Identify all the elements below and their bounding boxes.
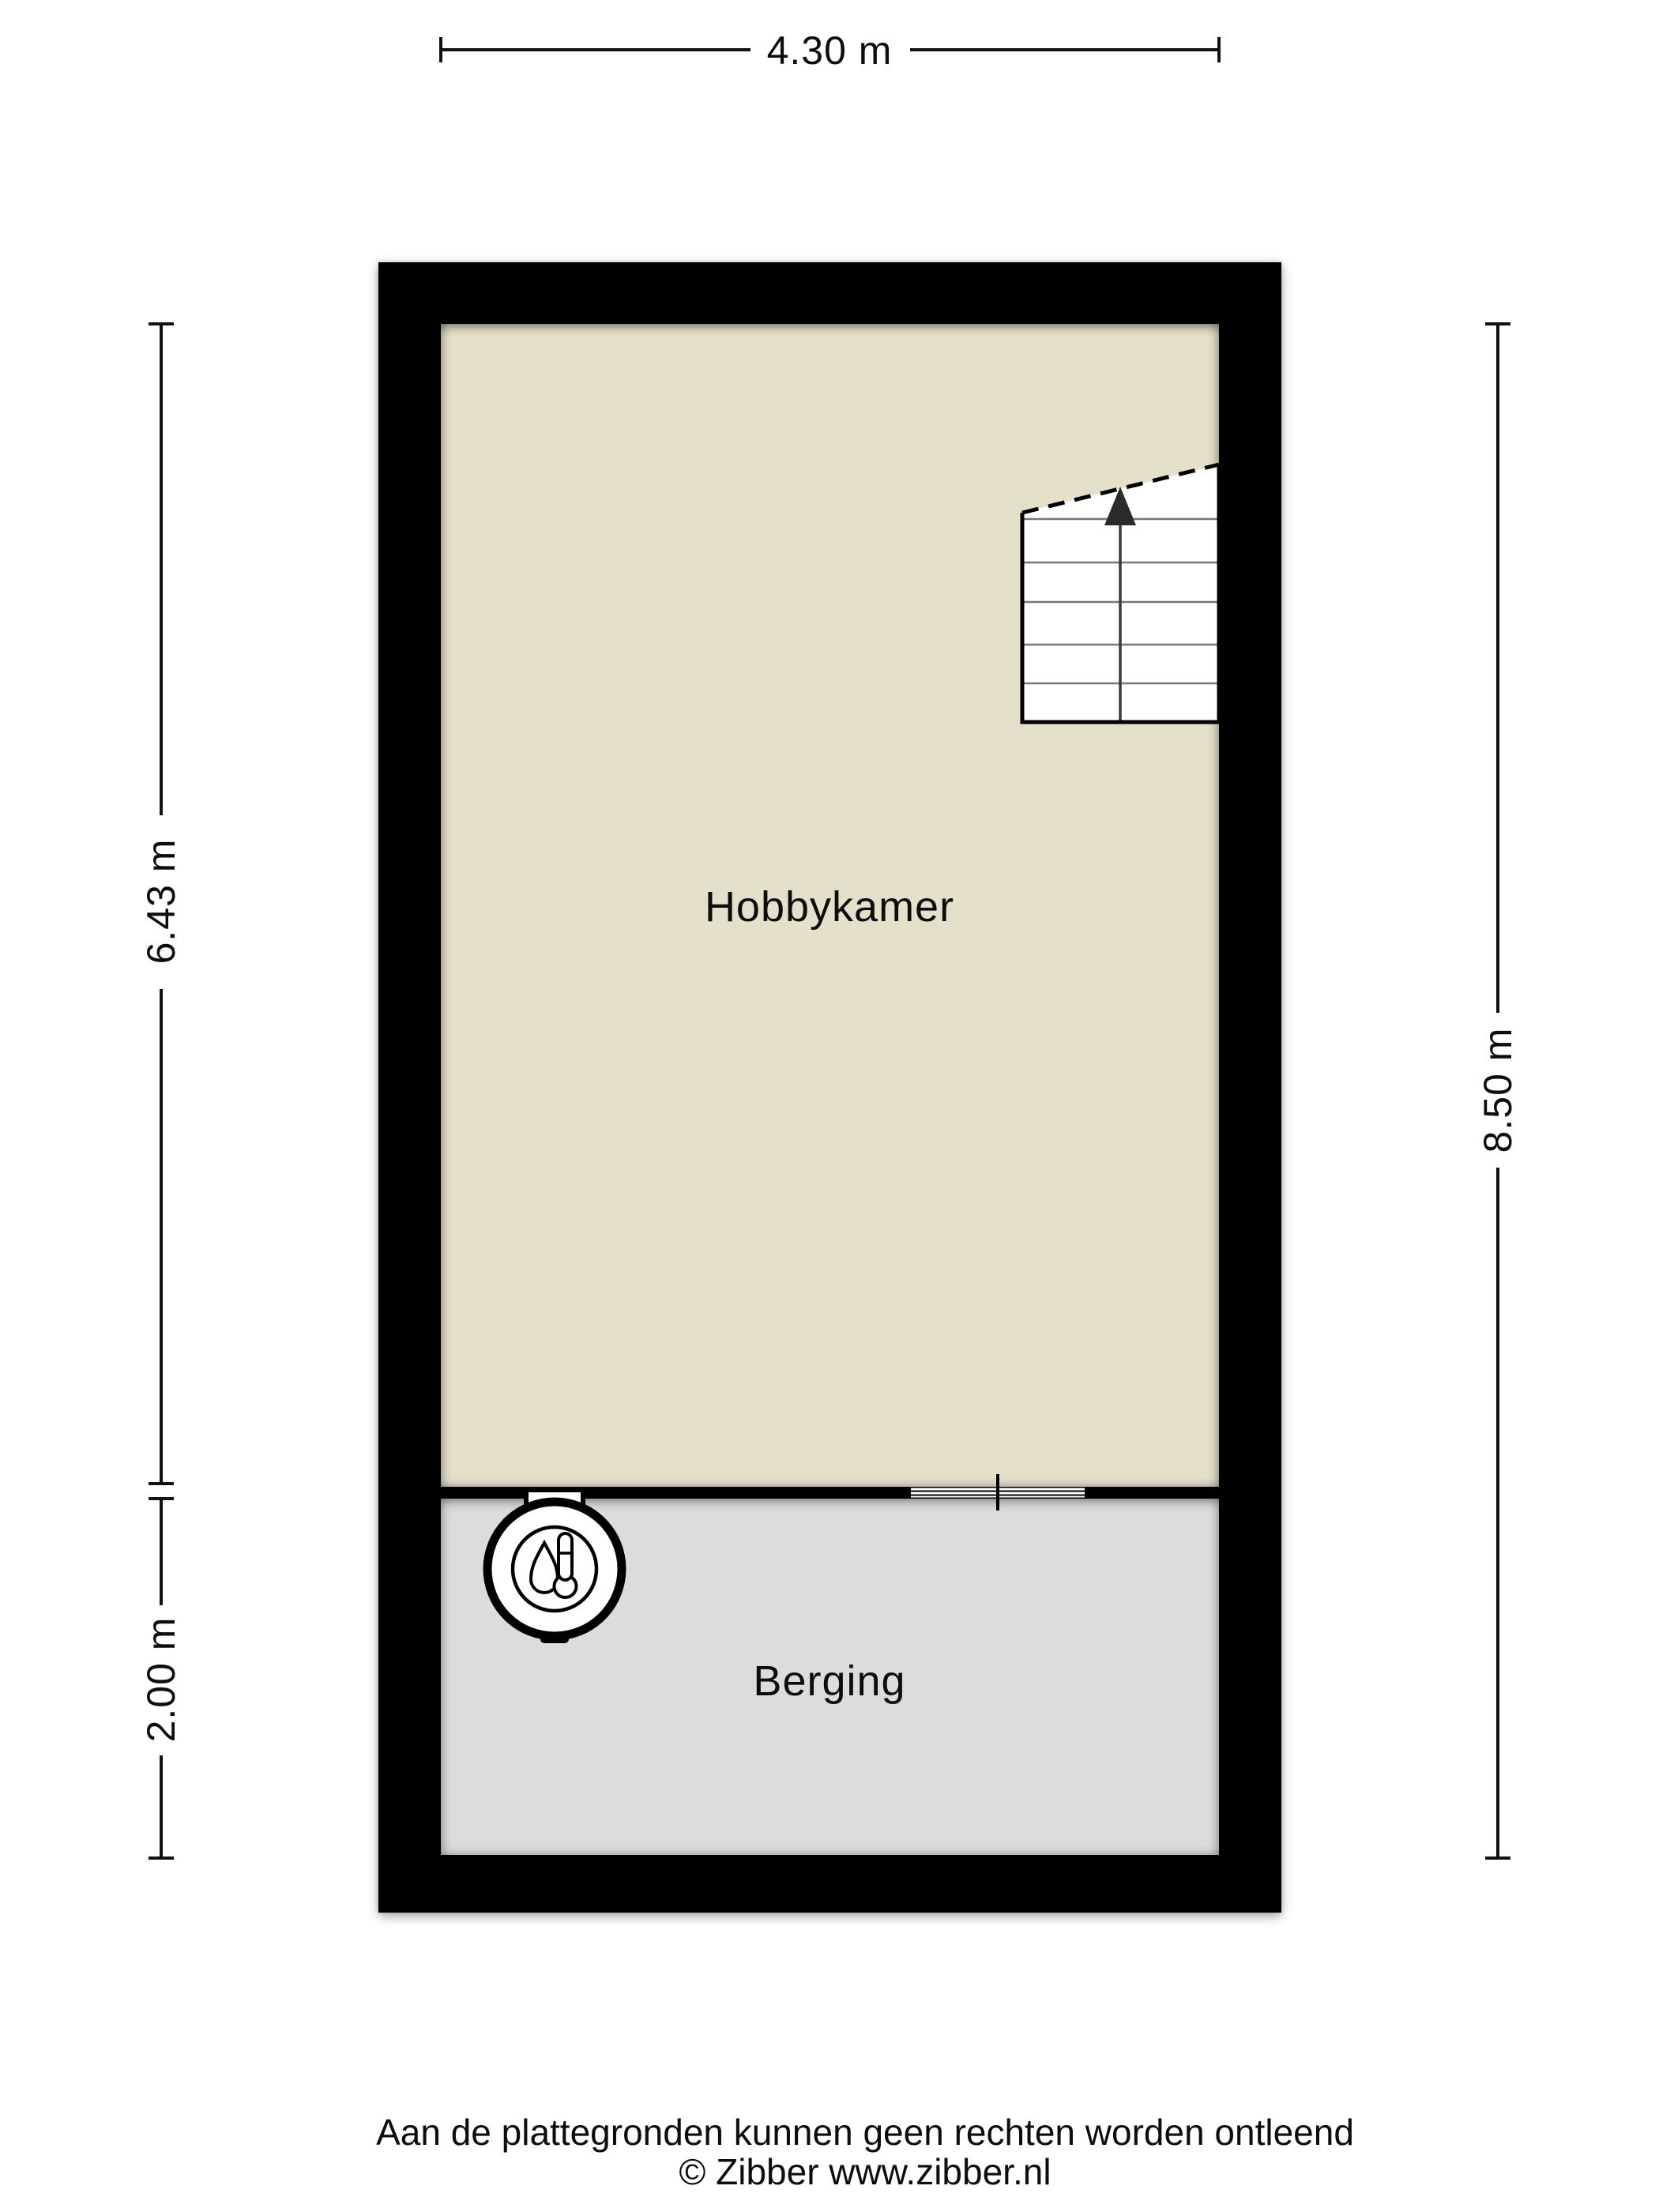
dimension-line bbox=[910, 48, 1219, 51]
interior-window-tick bbox=[996, 1474, 999, 1510]
dimension-label-hobby-height: 6.43 m bbox=[138, 839, 184, 965]
dimension-line bbox=[160, 325, 163, 815]
footer-copyright: © Zibber www.zibber.nl bbox=[679, 2150, 1051, 2193]
boiler-thermometer-stem bbox=[559, 1533, 572, 1580]
dimension-line bbox=[160, 1500, 163, 1605]
dimension-line bbox=[160, 1755, 163, 1856]
dimension-label-berging-height: 2.00 m bbox=[138, 1617, 184, 1743]
room-label-berging: Berging bbox=[753, 1657, 905, 1706]
dimension-tick bbox=[1217, 37, 1221, 62]
dimension-line bbox=[1496, 325, 1499, 1013]
footer-disclaimer: Aan de plattegronden kunnen geen rechten… bbox=[376, 2111, 1354, 2154]
stairs-icon bbox=[1019, 458, 1221, 727]
room-label-hobbykamer: Hobbykamer bbox=[705, 882, 954, 931]
dimension-line bbox=[160, 989, 163, 1484]
dimension-tick bbox=[149, 1856, 174, 1860]
boiler-icon bbox=[472, 1484, 637, 1650]
dimension-label-width: 4.30 m bbox=[767, 28, 893, 73]
dimension-label-total-height: 8.50 m bbox=[1475, 1028, 1521, 1153]
floorplan-page: 4.30 m 6.43 m 2.00 m 8.50 m bbox=[0, 0, 1659, 2212]
dimension-line bbox=[441, 48, 750, 51]
dimension-tick bbox=[149, 1482, 174, 1485]
dimension-tick bbox=[1485, 1856, 1510, 1860]
dimension-line bbox=[1496, 1168, 1499, 1856]
